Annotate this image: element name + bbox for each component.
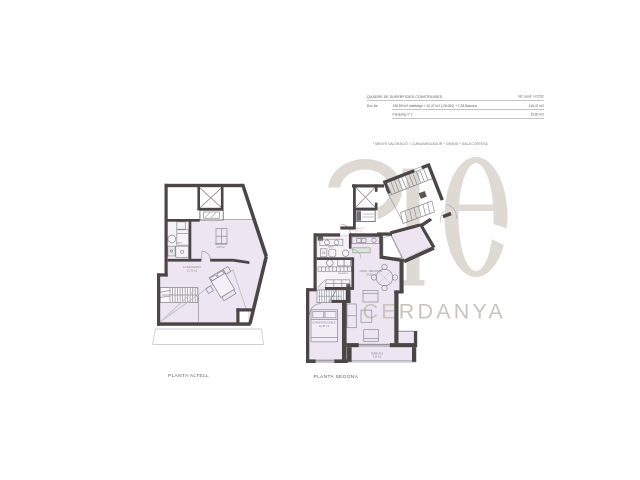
- svg-text:116,47 m2: 116,47 m2: [529, 104, 545, 108]
- svg-text:VESTIDOR: VESTIDOR: [215, 244, 227, 246]
- svg-text:1,90 m2: 1,90 m2: [355, 231, 364, 233]
- svg-text:10,35 m2: 10,35 m2: [319, 325, 330, 328]
- svg-text:NC const. H 220C: NC const. H 220C: [518, 94, 544, 98]
- svg-text:BANY: BANY: [328, 246, 334, 249]
- svg-text:CERDANYA: CERDANYA: [363, 300, 506, 324]
- svg-text:4,25 m2: 4,25 m2: [216, 247, 225, 249]
- svg-text:Dúo 5a: Dúo 5a: [367, 104, 378, 108]
- svg-text:106,59 m2 habitatge + 10,47 m2: 106,59 m2 habitatge + 10,47 m2 (1/8.000)…: [393, 104, 478, 108]
- svg-text:TERRASSA: TERRASSA: [371, 352, 384, 355]
- svg-text:PLANTA SEGONA: PLANTA SEGONA: [314, 374, 359, 379]
- svg-text:QUADRE DE SUPERFICIES CONSTRUI: QUADRE DE SUPERFICIES CONSTRUIDES: [367, 95, 443, 99]
- svg-text:15,80 m2: 15,80 m2: [530, 113, 544, 117]
- svg-text:28,95 m2: 28,95 m2: [366, 274, 377, 277]
- svg-text:* MENYS VALORACIÓ = CUINA/MENJ: * MENYS VALORACIÓ = CUINA/MENJADOR + GRA…: [373, 141, 488, 146]
- svg-text:SAFAREIG: SAFAREIG: [338, 272, 349, 275]
- svg-text:PLANTA ALTELL: PLANTA ALTELL: [168, 373, 209, 378]
- svg-text:BANY: BANY: [176, 241, 182, 244]
- svg-text:Parquing nº 2: Parquing nº 2: [393, 113, 413, 117]
- svg-text:11,70 m2: 11,70 m2: [187, 270, 198, 273]
- svg-text:2,35 m2: 2,35 m2: [373, 357, 382, 359]
